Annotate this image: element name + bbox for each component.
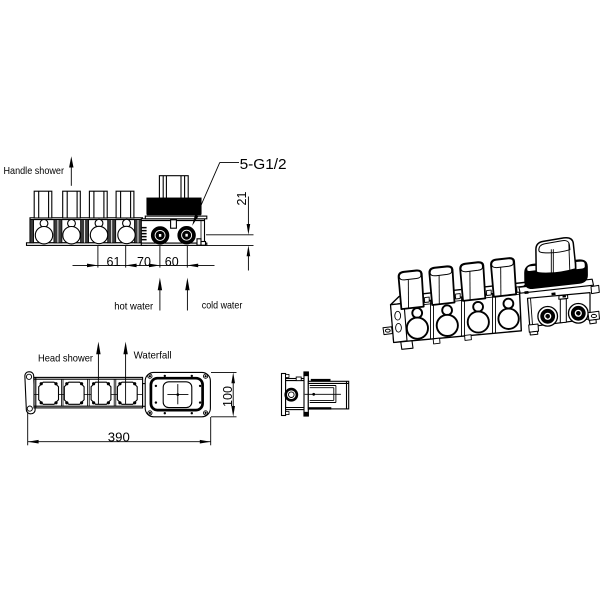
svg-text:61: 61 xyxy=(107,255,121,269)
svg-text:21: 21 xyxy=(235,192,249,206)
svg-text:60: 60 xyxy=(165,255,179,269)
svg-text:70: 70 xyxy=(137,255,151,269)
svg-text:Head shower: Head shower xyxy=(38,353,94,364)
svg-text:Waterfall: Waterfall xyxy=(134,350,172,361)
svg-text:100: 100 xyxy=(220,386,235,407)
svg-text:cold water: cold water xyxy=(202,301,243,312)
svg-text:hot water: hot water xyxy=(114,302,154,313)
svg-text:5-G1/2: 5-G1/2 xyxy=(240,156,287,173)
svg-text:Handle shower: Handle shower xyxy=(4,166,65,177)
